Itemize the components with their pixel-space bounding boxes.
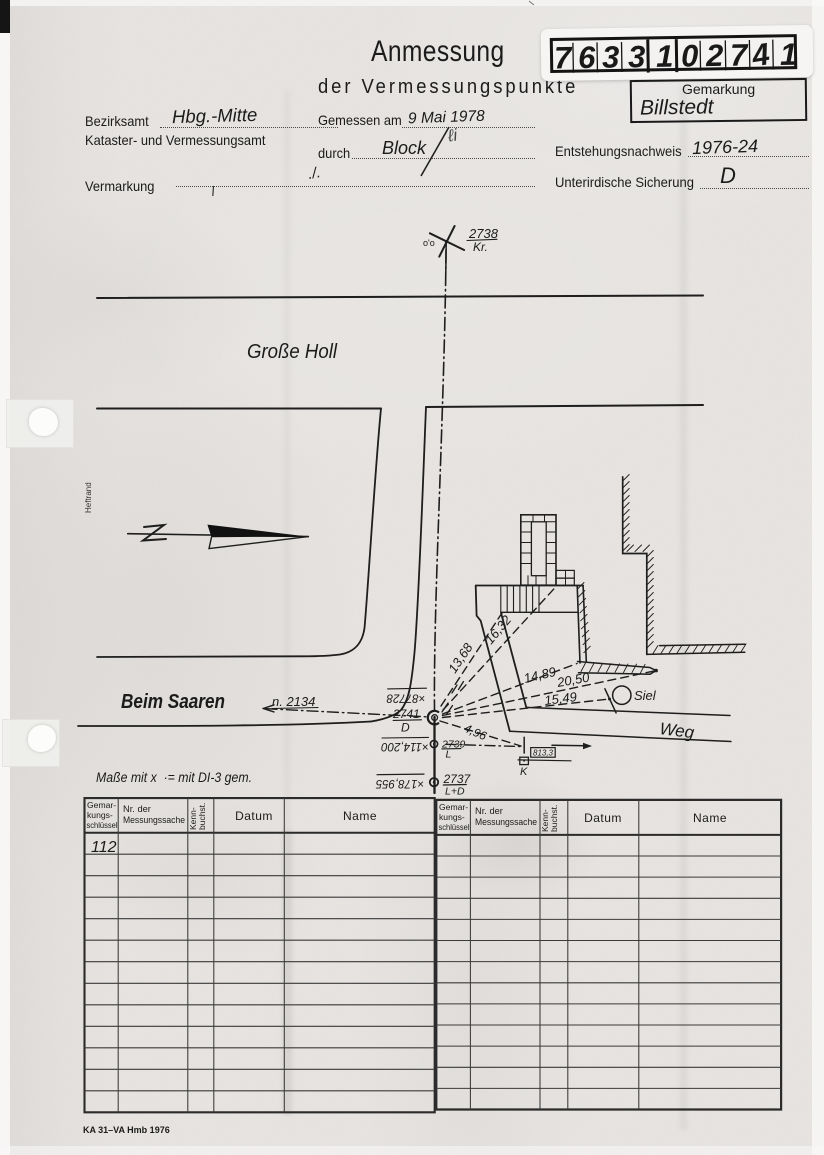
svg-text:13,68: 13,68 (445, 640, 476, 676)
svg-text:o'o: o'o (423, 238, 435, 248)
svg-text:4,96: 4,96 (462, 721, 489, 743)
svg-text:2737: 2737 (443, 772, 472, 786)
svg-text:KA 31–VA Hmb 1976: KA 31–VA Hmb 1976 (83, 1125, 170, 1135)
svg-text:Messungssache: Messungssache (475, 817, 537, 827)
svg-text:schlüssel: schlüssel (439, 822, 470, 832)
svg-text:2741: 2741 (392, 707, 420, 721)
svg-text:K: K (520, 766, 528, 778)
svg-text:×114,200: ×114,200 (381, 740, 429, 752)
svg-text:2738: 2738 (468, 226, 499, 241)
svg-text:Maße mit x ·= mit DI-3 gem.: Maße mit x ·= mit DI-3 gem. (96, 770, 252, 785)
svg-text:D: D (401, 721, 410, 735)
svg-text:16,32: 16,32 (482, 612, 515, 647)
svg-text:112: 112 (91, 839, 117, 856)
svg-text:L+D: L+D (445, 786, 465, 798)
svg-text:Große Holl: Große Holl (247, 341, 338, 363)
svg-text:Datum: Datum (584, 811, 622, 825)
svg-text:Gemar-: Gemar- (87, 800, 116, 810)
svg-text:813,3: 813,3 (533, 749, 554, 758)
svg-text:Gemar-: Gemar- (439, 802, 468, 812)
svg-text:L: L (446, 749, 452, 761)
svg-text:15,49: 15,49 (544, 689, 578, 708)
svg-text:14,89: 14,89 (522, 664, 557, 686)
svg-text:Siel: Siel (634, 688, 657, 703)
svg-text:buchst.: buchst. (549, 805, 559, 832)
svg-text:kungs-: kungs- (87, 810, 113, 820)
svg-text:×178,955: ×178,955 (375, 777, 424, 789)
svg-text:Name: Name (693, 811, 727, 825)
svg-text:×87728: ×87728 (386, 692, 425, 704)
svg-text:Messungssache: Messungssache (123, 815, 185, 825)
svg-text:kungs-: kungs- (439, 812, 465, 822)
svg-text:schlüssel: schlüssel (87, 820, 118, 830)
svg-text:20,50: 20,50 (555, 669, 591, 690)
svg-text:Nr. der: Nr. der (123, 804, 151, 814)
svg-text:Datum: Datum (235, 809, 273, 823)
svg-text:n. 2134: n. 2134 (272, 694, 315, 709)
svg-text:Kr.: Kr. (473, 240, 488, 254)
svg-text:Beim Saaren: Beim Saaren (121, 691, 225, 713)
svg-text:Name: Name (343, 809, 377, 823)
svg-text:Nr. der: Nr. der (475, 806, 503, 816)
svg-text:buchst.: buchst. (197, 803, 207, 830)
